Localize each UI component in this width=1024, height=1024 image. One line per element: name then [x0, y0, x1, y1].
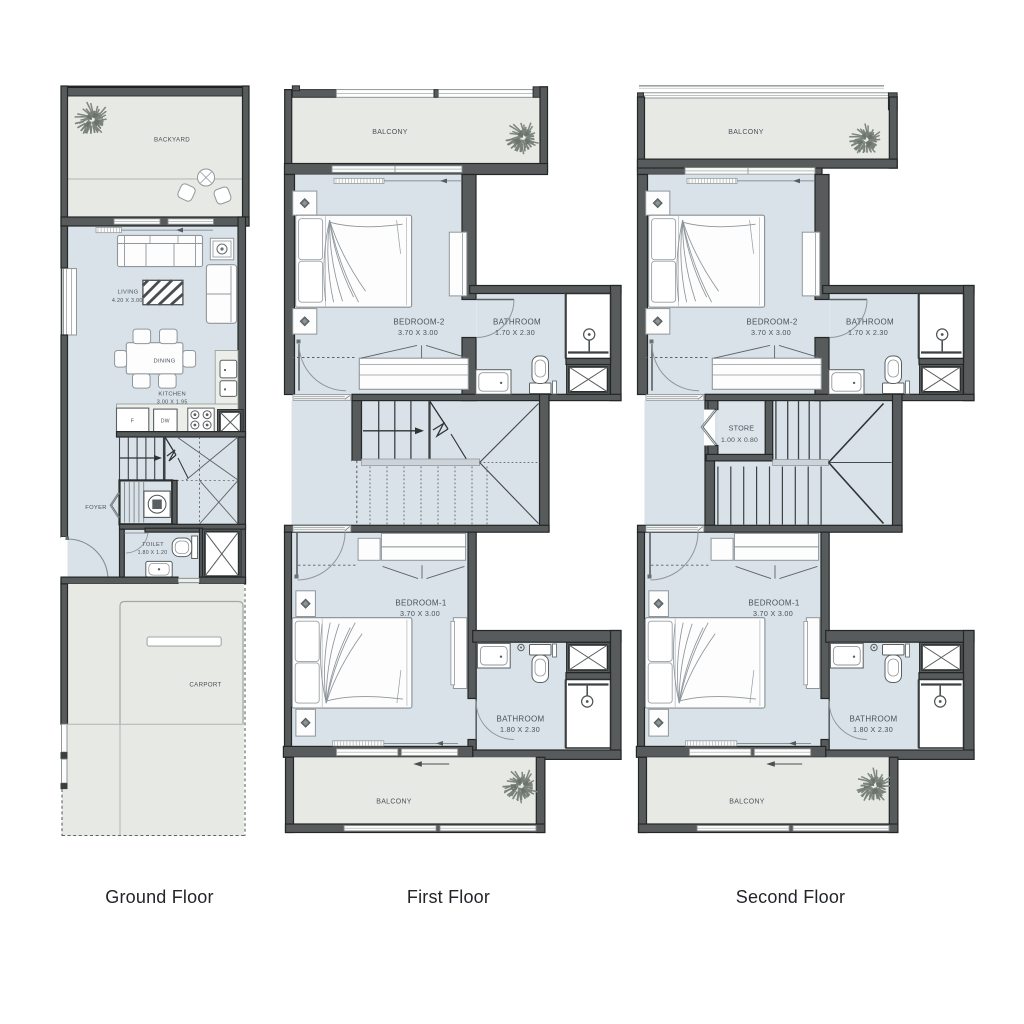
svg-text:BATHROOM: BATHROOM	[849, 715, 897, 724]
svg-text:BEDROOM-2: BEDROOM-2	[746, 318, 797, 327]
svg-text:BALCONY: BALCONY	[376, 799, 412, 806]
svg-text:F: F	[131, 419, 134, 425]
svg-text:1.80 X 2.30: 1.80 X 2.30	[853, 725, 893, 734]
svg-text:DW: DW	[161, 419, 170, 425]
svg-text:FOYER: FOYER	[85, 505, 106, 511]
svg-text:3.70 X 3.00: 3.70 X 3.00	[753, 609, 793, 618]
svg-text:BALCONY: BALCONY	[728, 129, 764, 136]
svg-text:BEDROOM-1: BEDROOM-1	[395, 599, 446, 608]
svg-text:First Floor: First Floor	[407, 887, 490, 907]
svg-text:BALCONY: BALCONY	[372, 129, 408, 136]
svg-text:BATHROOM: BATHROOM	[846, 318, 894, 327]
svg-text:3.70 X 3.00: 3.70 X 3.00	[400, 609, 440, 618]
svg-text:BATHROOM: BATHROOM	[496, 715, 544, 724]
svg-text:DINING: DINING	[153, 359, 175, 365]
svg-text:4.20 X 3.00: 4.20 X 3.00	[112, 298, 143, 304]
svg-text:STORE: STORE	[729, 424, 755, 433]
svg-text:Ground Floor: Ground Floor	[105, 887, 213, 907]
svg-text:1.00 X 0.80: 1.00 X 0.80	[721, 437, 758, 444]
svg-text:CARPORT: CARPORT	[189, 682, 221, 689]
svg-text:TOILET: TOILET	[142, 542, 164, 548]
svg-text:1.70 X 2.30: 1.70 X 2.30	[848, 328, 888, 337]
svg-text:3.70 X 3.00: 3.70 X 3.00	[398, 328, 438, 337]
svg-text:1.80 X 1.20: 1.80 X 1.20	[138, 550, 168, 556]
svg-text:BEDROOM-2: BEDROOM-2	[393, 318, 444, 327]
svg-text:BEDROOM-1: BEDROOM-1	[748, 599, 799, 608]
svg-text:1.80 X 2.30: 1.80 X 2.30	[500, 725, 540, 734]
svg-text:3.70 X 3.00: 3.70 X 3.00	[751, 328, 791, 337]
svg-text:Second Floor: Second Floor	[736, 887, 845, 907]
svg-text:LIVING: LIVING	[118, 290, 139, 296]
svg-text:BACKYARD: BACKYARD	[154, 137, 190, 144]
svg-text:1.70 X 2.30: 1.70 X 2.30	[495, 328, 535, 337]
svg-text:KITCHEN: KITCHEN	[158, 392, 186, 398]
svg-text:BATHROOM: BATHROOM	[493, 318, 541, 327]
svg-text:BALCONY: BALCONY	[729, 799, 765, 806]
